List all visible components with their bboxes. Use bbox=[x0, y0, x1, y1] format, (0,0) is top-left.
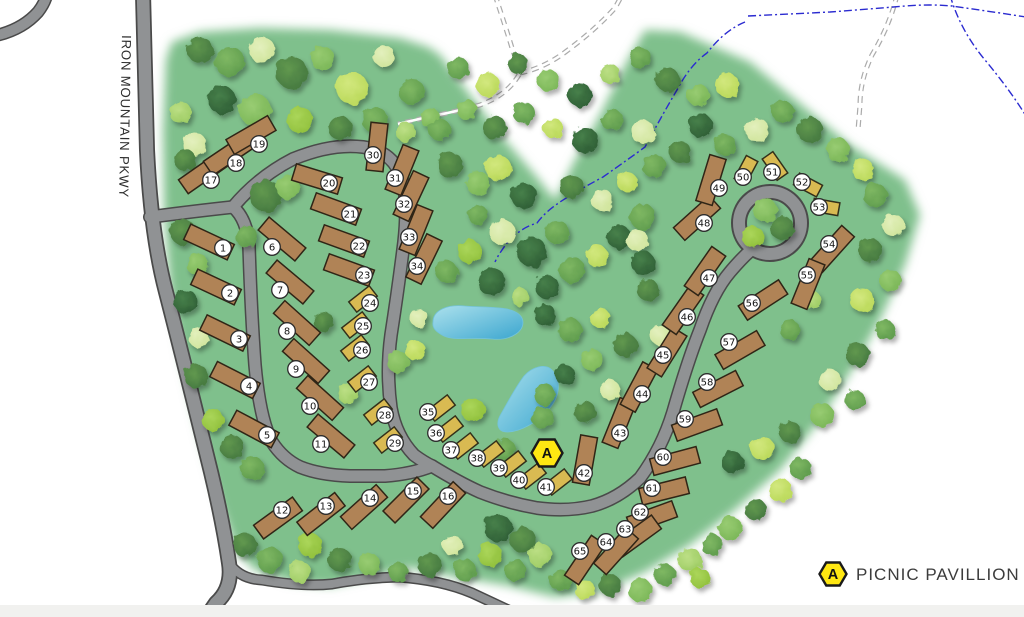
tree-icon bbox=[656, 68, 680, 92]
tree-icon bbox=[457, 100, 477, 120]
tree-icon bbox=[405, 340, 425, 360]
tree-icon bbox=[328, 548, 352, 572]
tree-icon bbox=[310, 46, 334, 70]
tree-icon bbox=[558, 318, 582, 342]
site-number: 53 bbox=[813, 203, 826, 214]
tree-icon bbox=[555, 365, 575, 385]
site-number: 59 bbox=[679, 415, 692, 426]
legend: A PICNIC PAVILLION bbox=[820, 563, 1020, 586]
tree-icon bbox=[789, 457, 811, 479]
site-number: 41 bbox=[540, 483, 553, 494]
site-number: 4 bbox=[246, 382, 252, 393]
site-marker-21: 21 bbox=[342, 206, 359, 223]
tree-icon bbox=[187, 37, 213, 63]
trail-path bbox=[858, 0, 897, 130]
tree-icon bbox=[852, 159, 874, 181]
site-marker-62: 62 bbox=[632, 504, 649, 521]
tree-icon bbox=[485, 155, 511, 181]
tree-icon bbox=[458, 240, 482, 264]
campground-map-page: 1234567891011121314151617181920212223242… bbox=[0, 0, 1024, 617]
site-number: 17 bbox=[205, 176, 218, 187]
tree-icon bbox=[510, 527, 536, 553]
tree-icon bbox=[875, 320, 895, 340]
tree-icon bbox=[590, 308, 610, 328]
tree-icon bbox=[174, 149, 196, 171]
tree-icon bbox=[810, 403, 834, 427]
tree-icon bbox=[846, 343, 870, 367]
site-number: 42 bbox=[578, 469, 591, 480]
tree-icon bbox=[718, 516, 742, 540]
site-marker-63: 63 bbox=[617, 521, 634, 538]
tree-icon bbox=[298, 533, 322, 557]
tree-icon bbox=[642, 154, 666, 178]
site-marker-22: 22 bbox=[351, 238, 368, 255]
tree-icon bbox=[478, 543, 502, 567]
tree-icon bbox=[289, 561, 311, 583]
site-number: 25 bbox=[357, 322, 370, 333]
tree-icon bbox=[559, 257, 585, 283]
site-marker-38: 38 bbox=[469, 450, 486, 467]
site-number: 3 bbox=[236, 335, 242, 346]
legend-pavilion-label: PICNIC PAVILLION bbox=[856, 565, 1020, 584]
site-number: 56 bbox=[746, 299, 759, 310]
tree-icon bbox=[572, 127, 598, 153]
tree-icon bbox=[478, 268, 506, 296]
site-number: 63 bbox=[619, 525, 632, 536]
site-marker-40: 40 bbox=[511, 472, 528, 489]
site-number: 30 bbox=[367, 151, 380, 162]
tree-icon bbox=[184, 364, 208, 388]
site-number: 50 bbox=[737, 173, 750, 184]
tree-icon bbox=[466, 171, 490, 195]
tree-icon bbox=[437, 152, 463, 178]
site-number: 51 bbox=[766, 168, 779, 179]
site-marker-65: 65 bbox=[572, 543, 589, 560]
tree-icon bbox=[745, 118, 769, 142]
site-marker-52: 52 bbox=[794, 174, 811, 191]
tree-icon bbox=[753, 198, 777, 222]
tree-icon bbox=[504, 559, 526, 581]
tree-icon bbox=[534, 304, 556, 326]
site-number: 7 bbox=[277, 286, 283, 297]
site-marker-57: 57 bbox=[721, 334, 738, 351]
tree-icon bbox=[484, 514, 512, 542]
pond bbox=[433, 306, 523, 340]
site-marker-15: 15 bbox=[405, 483, 422, 500]
site-number: 32 bbox=[398, 200, 411, 211]
tree-icon bbox=[545, 220, 569, 244]
site-marker-50: 50 bbox=[735, 169, 752, 186]
road-label-iron-mountain-pkwy: IRON MOUNTAIN PKWY bbox=[116, 35, 134, 198]
tree-icon bbox=[701, 534, 723, 556]
tree-icon bbox=[418, 553, 442, 577]
site-number: 19 bbox=[253, 140, 266, 151]
site-number: 24 bbox=[364, 299, 377, 310]
tree-icon bbox=[249, 37, 275, 63]
site-marker-54: 54 bbox=[821, 236, 838, 253]
site-marker-19: 19 bbox=[251, 136, 268, 153]
stream-path bbox=[748, 5, 1024, 17]
site-marker-44: 44 bbox=[634, 386, 651, 403]
site-marker-11: 11 bbox=[313, 436, 330, 453]
tree-icon bbox=[631, 120, 655, 144]
trail-core bbox=[520, 0, 622, 73]
site-number: 60 bbox=[657, 453, 670, 464]
site-number: 15 bbox=[407, 487, 420, 498]
site-number: 52 bbox=[796, 178, 809, 189]
tree-icon bbox=[797, 117, 823, 143]
site-number: 6 bbox=[269, 243, 275, 254]
site-marker-30: 30 bbox=[365, 147, 382, 164]
tree-icon bbox=[169, 101, 191, 123]
site-number: 22 bbox=[353, 242, 366, 253]
site-marker-7: 7 bbox=[272, 282, 289, 299]
tree-icon bbox=[508, 54, 528, 74]
site-number: 1 bbox=[220, 244, 226, 255]
tree-icon bbox=[629, 47, 651, 69]
site-number: 36 bbox=[430, 429, 443, 440]
tree-icon bbox=[581, 349, 603, 371]
tree-icon bbox=[537, 69, 559, 91]
tree-icon bbox=[586, 245, 608, 267]
site-marker-2: 2 bbox=[222, 285, 239, 302]
tree-icon bbox=[742, 226, 764, 248]
site-number: 43 bbox=[614, 429, 627, 440]
tree-icon bbox=[780, 320, 800, 340]
site-marker-16: 16 bbox=[440, 488, 457, 505]
tree-icon bbox=[768, 478, 792, 502]
tree-icon bbox=[770, 216, 794, 240]
tree-icon bbox=[858, 238, 882, 262]
tree-icon bbox=[617, 172, 637, 192]
tree-icon bbox=[601, 109, 623, 131]
site-marker-29: 29 bbox=[387, 435, 404, 452]
site-marker-23: 23 bbox=[356, 267, 373, 284]
tree-icon bbox=[359, 554, 381, 576]
site-marker-31: 31 bbox=[387, 170, 404, 187]
site-marker-59: 59 bbox=[677, 411, 694, 428]
tree-icon bbox=[202, 409, 224, 431]
tree-icon bbox=[669, 141, 691, 163]
site-number: 11 bbox=[315, 440, 328, 451]
site-number: 47 bbox=[703, 274, 716, 285]
tree-icon bbox=[863, 183, 887, 207]
site-number: 54 bbox=[823, 240, 836, 251]
site-marker-18: 18 bbox=[228, 155, 245, 172]
site-marker-1: 1 bbox=[215, 240, 232, 257]
tree-icon bbox=[631, 251, 655, 275]
site-number: 2 bbox=[227, 289, 233, 300]
site-marker-13: 13 bbox=[318, 498, 335, 515]
site-number: 8 bbox=[284, 327, 290, 338]
site-marker-43: 43 bbox=[612, 425, 629, 442]
site-number: 44 bbox=[636, 390, 649, 401]
tree-icon bbox=[461, 398, 485, 422]
tree-icon bbox=[240, 456, 264, 480]
site-number: 16 bbox=[442, 492, 455, 503]
tree-icon bbox=[600, 380, 620, 400]
site-number: 39 bbox=[493, 464, 506, 475]
tree-icon bbox=[630, 204, 656, 230]
site-marker-10: 10 bbox=[302, 398, 319, 415]
site-marker-36: 36 bbox=[428, 425, 445, 442]
site-marker-64: 64 bbox=[598, 534, 615, 551]
tree-icon bbox=[468, 205, 488, 225]
site-marker-12: 12 bbox=[274, 502, 291, 519]
tree-icon bbox=[517, 237, 547, 267]
site-marker-6: 6 bbox=[264, 239, 281, 256]
site-number: 33 bbox=[403, 233, 416, 244]
site-marker-33: 33 bbox=[401, 229, 418, 246]
tree-icon bbox=[534, 384, 556, 406]
tree-icon bbox=[591, 189, 613, 211]
site-number: 21 bbox=[344, 210, 357, 221]
site-number: 61 bbox=[646, 484, 659, 495]
site-number: 58 bbox=[701, 378, 714, 389]
site-number: 48 bbox=[698, 219, 711, 230]
site-number: 64 bbox=[600, 538, 613, 549]
tree-icon bbox=[373, 45, 395, 67]
trail-path bbox=[520, 0, 622, 73]
tree-icon bbox=[568, 83, 592, 107]
site-marker-32: 32 bbox=[396, 196, 413, 213]
tree-icon bbox=[257, 547, 283, 573]
tree-icon bbox=[819, 369, 841, 391]
site-marker-51: 51 bbox=[764, 164, 781, 181]
tree-icon bbox=[174, 290, 198, 314]
tree-icon bbox=[850, 288, 874, 312]
site-number: 26 bbox=[356, 346, 369, 357]
site-marker-5: 5 bbox=[259, 427, 276, 444]
site-marker-45: 45 bbox=[655, 347, 672, 364]
tree-icon bbox=[235, 225, 257, 247]
tree-icon bbox=[600, 64, 620, 84]
tree-icon bbox=[483, 116, 507, 140]
stream-path bbox=[950, 0, 1024, 116]
site-marker-4: 4 bbox=[241, 378, 258, 395]
tree-icon bbox=[826, 138, 850, 162]
tree-icon bbox=[599, 574, 621, 596]
site-marker-14: 14 bbox=[362, 490, 379, 507]
site-marker-46: 46 bbox=[679, 309, 696, 326]
tree-icon bbox=[532, 407, 554, 429]
tree-icon bbox=[387, 351, 409, 373]
tree-icon bbox=[714, 134, 736, 156]
site-marker-56: 56 bbox=[744, 295, 761, 312]
tree-icon bbox=[882, 214, 904, 236]
site-marker-53: 53 bbox=[811, 199, 828, 216]
site-number: 10 bbox=[304, 402, 317, 413]
site-number: 37 bbox=[445, 446, 458, 457]
site-number: 31 bbox=[389, 174, 402, 185]
tree-icon bbox=[535, 275, 559, 299]
site-marker-47: 47 bbox=[701, 270, 718, 287]
tree-icon bbox=[476, 73, 500, 97]
tree-icon bbox=[628, 578, 652, 602]
site-marker-28: 28 bbox=[377, 407, 394, 424]
tree-icon bbox=[276, 57, 308, 89]
tree-icon bbox=[336, 72, 368, 104]
site-marker-58: 58 bbox=[699, 374, 716, 391]
site-number: 40 bbox=[513, 476, 526, 487]
site-marker-60: 60 bbox=[655, 449, 672, 466]
tree-icon bbox=[687, 84, 709, 106]
tree-icon bbox=[396, 122, 416, 142]
tree-icon bbox=[328, 116, 352, 140]
tree-icon bbox=[750, 436, 774, 460]
tree-icon bbox=[745, 499, 767, 521]
site-number: 20 bbox=[323, 179, 336, 190]
site-number: 18 bbox=[230, 159, 243, 170]
site-number: 55 bbox=[801, 271, 814, 282]
site-marker-61: 61 bbox=[644, 480, 661, 497]
legend-marker-letter: A bbox=[828, 567, 839, 583]
site-number: 9 bbox=[293, 365, 299, 376]
site-number: 12 bbox=[276, 506, 289, 517]
tree-icon bbox=[220, 435, 244, 459]
site-number: 49 bbox=[713, 184, 726, 195]
site-marker-27: 27 bbox=[361, 374, 378, 391]
site-number: 29 bbox=[389, 439, 402, 450]
site-marker-42: 42 bbox=[576, 465, 593, 482]
site-marker-37: 37 bbox=[443, 442, 460, 459]
site-marker-35: 35 bbox=[420, 404, 437, 421]
tree-icon bbox=[560, 175, 584, 199]
tree-icon bbox=[721, 451, 743, 473]
site-number: 65 bbox=[574, 547, 587, 558]
tree-icon bbox=[772, 101, 794, 123]
site-marker-20: 20 bbox=[321, 175, 338, 192]
site-marker-24: 24 bbox=[362, 295, 379, 312]
site-number: 34 bbox=[411, 262, 424, 273]
site-marker-17: 17 bbox=[203, 172, 220, 189]
site-number: 5 bbox=[264, 431, 270, 442]
tree-icon bbox=[654, 564, 676, 586]
bottom-strip bbox=[0, 605, 1024, 617]
tree-icon bbox=[215, 47, 245, 77]
tree-icon bbox=[513, 102, 535, 124]
tree-icon bbox=[399, 79, 425, 105]
site-marker-41: 41 bbox=[538, 479, 555, 496]
tree-icon bbox=[715, 73, 739, 97]
tree-icon bbox=[410, 309, 428, 327]
tree-icon bbox=[613, 333, 637, 357]
site-number: 35 bbox=[422, 408, 435, 419]
site-number: 14 bbox=[364, 494, 377, 505]
tree-icon bbox=[436, 261, 458, 283]
site-marker-9: 9 bbox=[288, 361, 305, 378]
tree-icon bbox=[626, 229, 648, 251]
site-number: 27 bbox=[363, 378, 376, 389]
site-number: 38 bbox=[471, 454, 484, 465]
tree-icon bbox=[688, 113, 712, 137]
tree-icon bbox=[388, 562, 408, 582]
tree-icon bbox=[637, 279, 659, 301]
site-marker-55: 55 bbox=[799, 267, 816, 284]
site-number: 28 bbox=[379, 411, 392, 422]
tree-icon bbox=[447, 57, 469, 79]
picnic-pavilion-marker: A bbox=[532, 440, 563, 467]
pavilion-marker-letter: A bbox=[542, 446, 553, 462]
tree-icon bbox=[845, 390, 865, 410]
tree-icon bbox=[287, 107, 313, 133]
site-marker-3: 3 bbox=[231, 331, 248, 348]
tree-icon bbox=[690, 568, 710, 588]
site-number: 46 bbox=[681, 313, 694, 324]
tree-icon bbox=[543, 118, 563, 138]
tree-icon bbox=[429, 119, 451, 141]
tree-icon bbox=[511, 183, 537, 209]
tree-icon bbox=[442, 535, 462, 555]
site-number: 62 bbox=[634, 508, 647, 519]
tree-icon bbox=[233, 533, 257, 557]
site-marker-25: 25 bbox=[355, 318, 372, 335]
site-number: 45 bbox=[657, 351, 670, 362]
tree-icon bbox=[489, 219, 515, 245]
tree-icon bbox=[779, 421, 801, 443]
tree-icon bbox=[208, 86, 236, 114]
site-marker-48: 48 bbox=[696, 215, 713, 232]
tree-icon bbox=[574, 401, 596, 423]
site-marker-34: 34 bbox=[409, 258, 426, 275]
tree-icon bbox=[454, 559, 476, 581]
site-number: 13 bbox=[320, 502, 333, 513]
tree-icon bbox=[511, 288, 529, 306]
tree-icon bbox=[879, 269, 901, 291]
site-marker-26: 26 bbox=[354, 342, 371, 359]
site-number: 23 bbox=[358, 271, 371, 282]
site-number: 57 bbox=[723, 338, 736, 349]
campground-site-map: 1234567891011121314151617181920212223242… bbox=[0, 0, 1024, 617]
site-marker-8: 8 bbox=[279, 323, 296, 340]
site-marker-39: 39 bbox=[491, 460, 508, 477]
site-marker-49: 49 bbox=[711, 180, 728, 197]
